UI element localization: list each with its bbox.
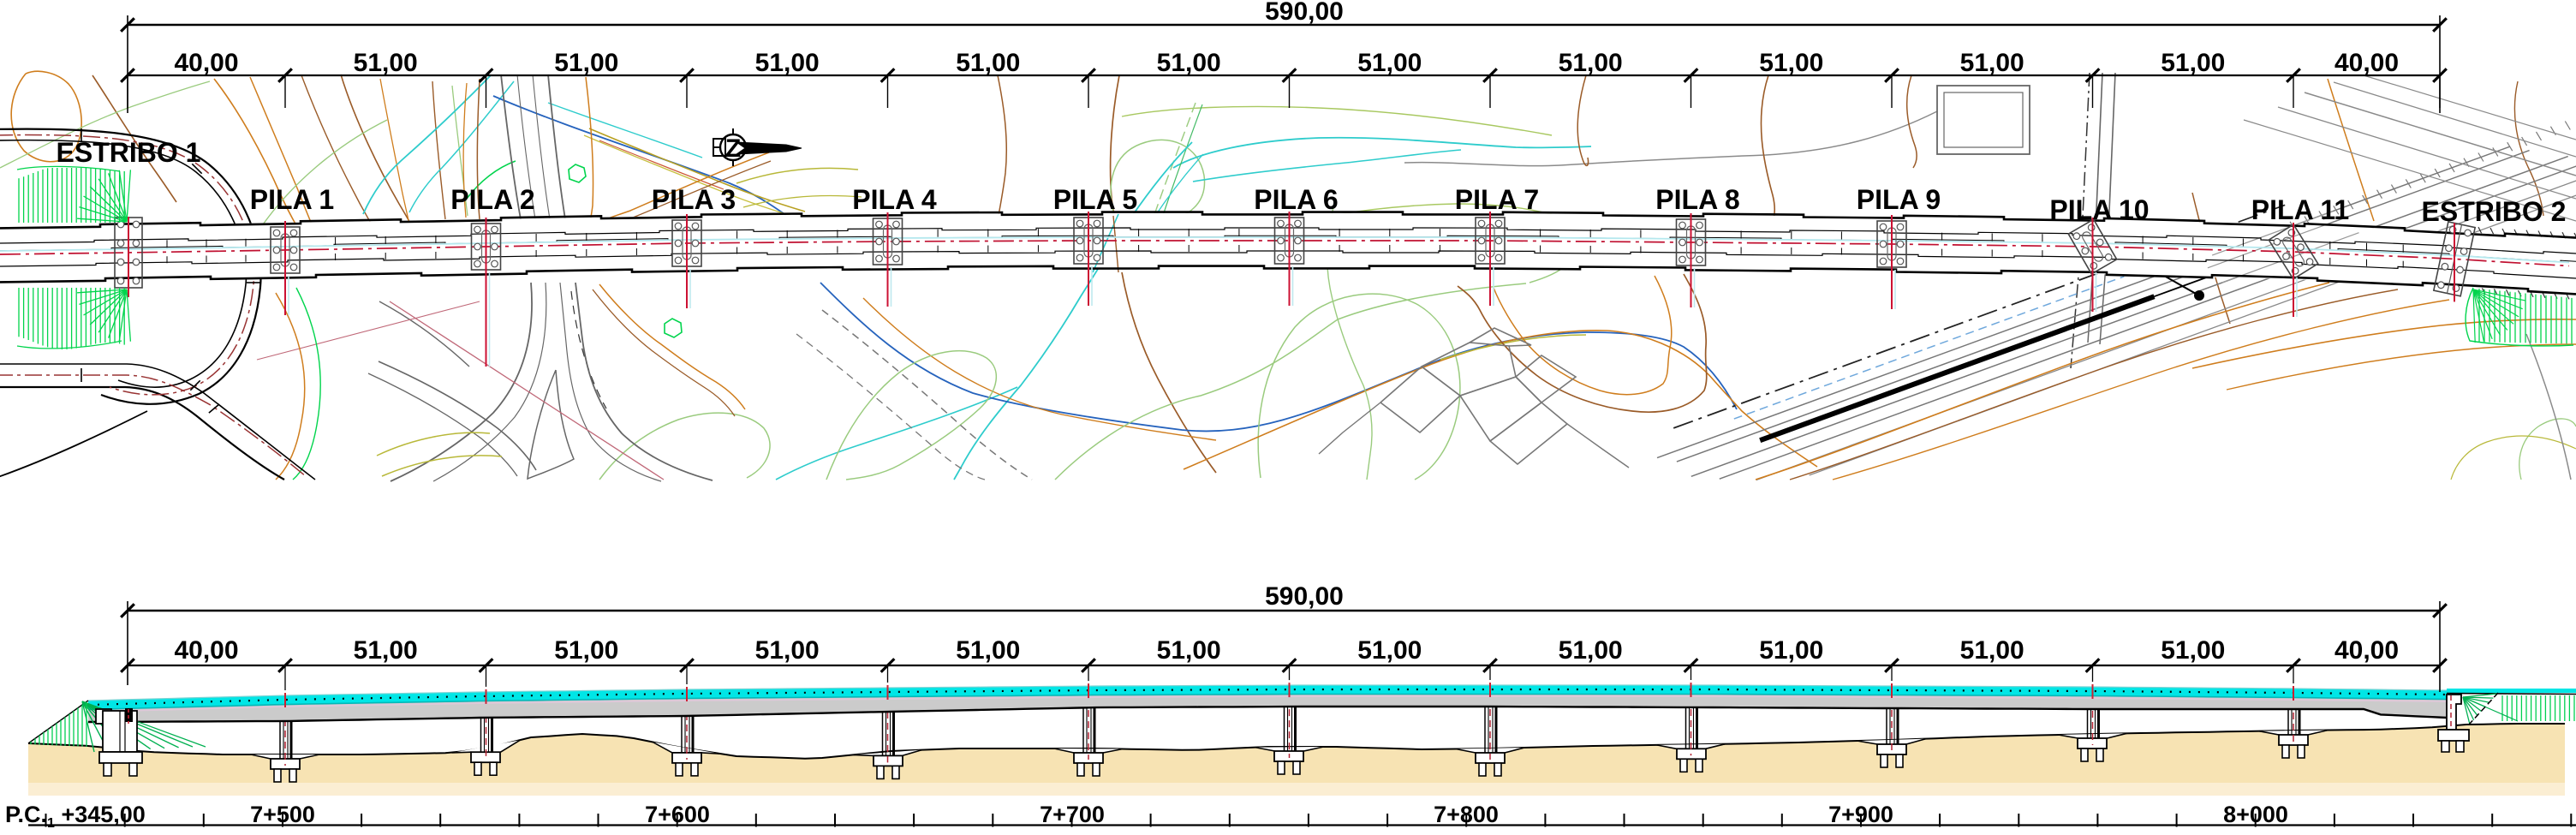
svg-text:51,00: 51,00 — [554, 636, 618, 665]
svg-text:7+900: 7+900 — [1828, 802, 1893, 827]
svg-text:7+800: 7+800 — [1434, 802, 1499, 827]
svg-text:51,00: 51,00 — [1759, 49, 1823, 77]
svg-text:51,00: 51,00 — [1157, 49, 1221, 77]
svg-text:40,00: 40,00 — [174, 49, 238, 77]
svg-text:PILA 9: PILA 9 — [1857, 184, 1941, 215]
svg-text:PILA 2: PILA 2 — [450, 184, 534, 215]
svg-text:51,00: 51,00 — [1960, 636, 2024, 665]
svg-text:51,00: 51,00 — [1357, 49, 1422, 77]
svg-text:PILA 11: PILA 11 — [2251, 194, 2349, 225]
svg-text:PILA 8: PILA 8 — [1655, 184, 1739, 215]
svg-text:51,00: 51,00 — [1157, 636, 1221, 665]
svg-text:51,00: 51,00 — [2161, 49, 2225, 77]
svg-text:7+500: 7+500 — [250, 802, 315, 827]
svg-text:51,00: 51,00 — [1759, 636, 1823, 665]
svg-text:51,00: 51,00 — [956, 49, 1020, 77]
svg-text:590,00: 590,00 — [1265, 582, 1344, 611]
svg-text:40,00: 40,00 — [2334, 636, 2399, 665]
svg-text:40,00: 40,00 — [2334, 49, 2399, 77]
svg-text:51,00: 51,00 — [956, 636, 1020, 665]
svg-text:51,00: 51,00 — [554, 49, 618, 77]
svg-text:51,00: 51,00 — [1357, 636, 1422, 665]
svg-text:51,00: 51,00 — [354, 49, 418, 77]
svg-text:51,00: 51,00 — [755, 636, 820, 665]
svg-text:51,00: 51,00 — [1559, 636, 1623, 665]
svg-text:PILA 1: PILA 1 — [250, 184, 334, 215]
svg-text:7+600: 7+600 — [645, 802, 710, 827]
svg-text:ESTRIBO 1: ESTRIBO 1 — [57, 137, 201, 168]
svg-text:7+700: 7+700 — [1040, 802, 1105, 827]
svg-text:ESTRIBO 2: ESTRIBO 2 — [2422, 196, 2567, 227]
svg-text:51,00: 51,00 — [1960, 49, 2024, 77]
svg-text:40,00: 40,00 — [174, 636, 238, 665]
svg-text:51,00: 51,00 — [354, 636, 418, 665]
svg-text:8+000: 8+000 — [2223, 802, 2288, 827]
svg-text:PILA 6: PILA 6 — [1254, 184, 1338, 215]
svg-text:PILA 5: PILA 5 — [1053, 184, 1137, 215]
svg-text:P.C.1 +345,00: P.C.1 +345,00 — [5, 802, 146, 831]
svg-text:51,00: 51,00 — [2161, 636, 2225, 665]
svg-text:PILA 3: PILA 3 — [652, 184, 736, 215]
svg-text:PILA 10: PILA 10 — [2049, 194, 2149, 225]
svg-text:590,00: 590,00 — [1265, 0, 1344, 26]
svg-text:PILA 7: PILA 7 — [1455, 184, 1539, 215]
svg-text:PILA 4: PILA 4 — [852, 184, 937, 215]
svg-text:51,00: 51,00 — [1559, 49, 1623, 77]
svg-text:Z: Z — [725, 134, 741, 163]
svg-text:51,00: 51,00 — [755, 49, 820, 77]
